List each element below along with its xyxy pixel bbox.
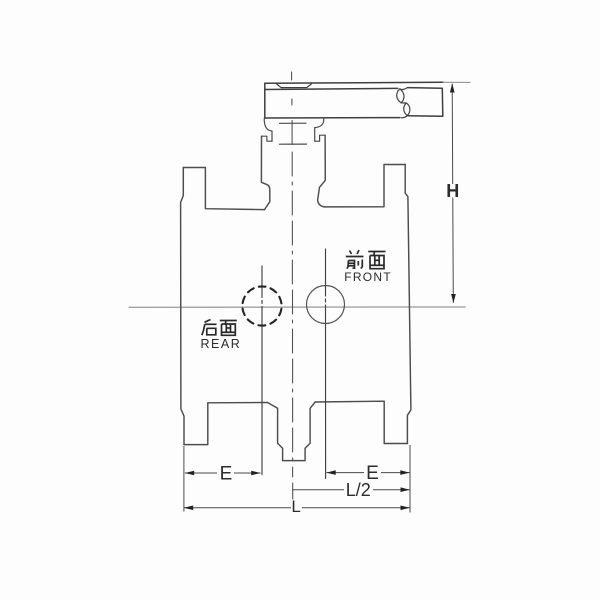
svg-text:FRONT: FRONT (344, 270, 392, 284)
svg-text:REAR: REAR (201, 337, 242, 351)
svg-text:L: L (291, 497, 300, 516)
svg-text:E: E (220, 464, 233, 485)
svg-text:L/2: L/2 (346, 480, 371, 500)
svg-text:H: H (446, 181, 459, 201)
